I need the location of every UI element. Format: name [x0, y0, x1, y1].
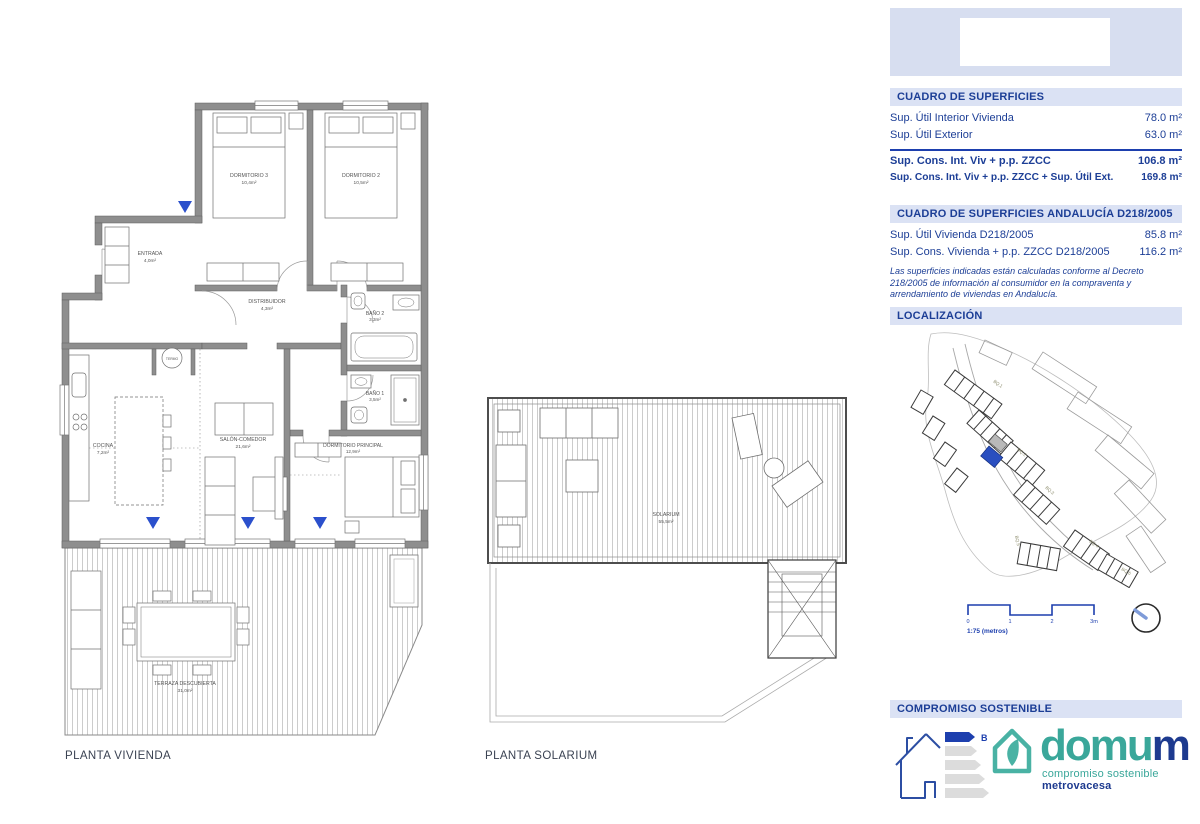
svg-text:21,6m²: 21,6m² [236, 444, 251, 450]
domum-house-leaf-icon [985, 722, 1039, 776]
bano2-fixtures [351, 293, 419, 361]
header-box [890, 8, 1182, 76]
table-row: Sup. Cons. Vivienda + p.p. ZZCC D218/200… [890, 246, 1182, 258]
svg-text:31,0m²: 31,0m² [178, 688, 193, 694]
svg-text:BQ.5: BQ.5 [1014, 535, 1021, 547]
svg-text:1: 1 [1008, 619, 1011, 625]
scale-ticks: 0 1 2 3m [966, 619, 1098, 625]
table-divider [890, 149, 1182, 151]
cocina-label: COCINA [93, 443, 114, 449]
solarium-label: SOLARIUM [652, 512, 679, 518]
termo-label: TERMO [166, 357, 179, 361]
table-row: Sup. Útil Interior Vivienda 78.0 m² [890, 112, 1182, 124]
header-logo-placeholder [960, 18, 1110, 66]
terrain-outline [926, 333, 1157, 576]
scale-label: 1:75 (metros) [967, 628, 1008, 635]
cocina-furniture [69, 348, 182, 505]
distribuidor-label: DISTRIBUIDOR [248, 299, 285, 305]
project-buildings [911, 370, 1138, 588]
table-row-total: Sup. Cons. Int. Viv + p.p. ZZCC 106.8 m² [890, 155, 1182, 167]
location-map: BQ.1 BQ.2 BQ.3 BQ.4 BQ.5 BQ.6 [893, 330, 1183, 588]
bano2-label: BAÑO 2 [366, 310, 385, 317]
section-localizacion-title: LOCALIZACIÓN [890, 307, 1182, 325]
stairwell [768, 560, 836, 658]
plan-sheet: DORMITORIO 3 10,4m² DORMITORIO 2 10,5m² … [0, 0, 1200, 824]
svg-text:10,5m²: 10,5m² [354, 180, 369, 186]
dorm3-label: DORMITORIO 3 [230, 173, 268, 179]
svg-text:3m: 3m [1090, 619, 1098, 625]
bano1-fixtures [351, 375, 419, 425]
floorplan-solarium: SOLARIUM 55,5m² [480, 390, 860, 735]
caption-planta-solarium: PLANTA SOLARIUM [485, 750, 598, 762]
svg-text:BQ.3: BQ.3 [1044, 485, 1055, 496]
svg-text:3,5m²: 3,5m² [369, 397, 381, 402]
block-labels: BQ.1 BQ.2 BQ.3 BQ.4 BQ.5 BQ.6 [992, 379, 1132, 576]
svg-text:3,3m²: 3,3m² [369, 317, 381, 322]
decree-note: Las superficies indicadas están calculad… [890, 266, 1182, 301]
salon-label: SALÓN-COMEDOR [220, 436, 267, 443]
svg-text:10,4m²: 10,4m² [242, 180, 257, 186]
entrada-closet [105, 227, 129, 283]
domum-tagline: compromiso sostenible metrovacesa [1042, 768, 1200, 792]
table-row: Sup. Útil Vivienda D218/2005 85.8 m² [890, 229, 1182, 241]
table-row: Sup. Útil Exterior 63.0 m² [890, 129, 1182, 141]
entrada-label: ENTRADA [138, 251, 163, 257]
svg-text:12,9m²: 12,9m² [346, 449, 361, 454]
svg-text:0: 0 [966, 619, 969, 625]
caption-planta-vivienda: PLANTA VIVIENDA [65, 750, 171, 762]
dorm2-furniture [325, 113, 415, 281]
section-sostenible-title: COMPROMISO SOSTENIBLE [890, 700, 1182, 718]
floorplan-vivienda: DORMITORIO 3 10,4m² DORMITORIO 2 10,5m² … [45, 85, 465, 755]
dorm3-furniture [207, 113, 303, 281]
section-superficies-title: CUADRO DE SUPERFICIES [890, 88, 1182, 106]
section-andalucia-title: CUADRO DE SUPERFICIES ANDALUCÍA D218/200… [890, 205, 1182, 223]
dorm2-label: DORMITORIO 2 [342, 173, 380, 179]
svg-text:7,2m²: 7,2m² [97, 450, 110, 456]
svg-text:4,0m²: 4,0m² [144, 258, 157, 264]
scale-bar: 0 1 2 3m 1:75 (metros) [963, 597, 1103, 637]
bano1-label: BAÑO 1 [366, 390, 385, 397]
energy-rating-icon: B [893, 720, 993, 804]
table-row-total: Sup. Cons. Int. Viv + p.p. ZZCC + Sup. Ú… [890, 172, 1182, 183]
north-arrow-icon [1126, 598, 1166, 638]
svg-text:4,3m²: 4,3m² [261, 306, 274, 312]
dormppal-furniture [295, 443, 419, 533]
terraza-label: TERRAZA DESCUBIERTA [154, 681, 216, 687]
svg-text:BQ.1: BQ.1 [992, 379, 1004, 389]
domum-wordmark: domum [1040, 724, 1189, 768]
svg-text:2: 2 [1050, 619, 1053, 625]
svg-text:55,5m²: 55,5m² [659, 519, 674, 525]
